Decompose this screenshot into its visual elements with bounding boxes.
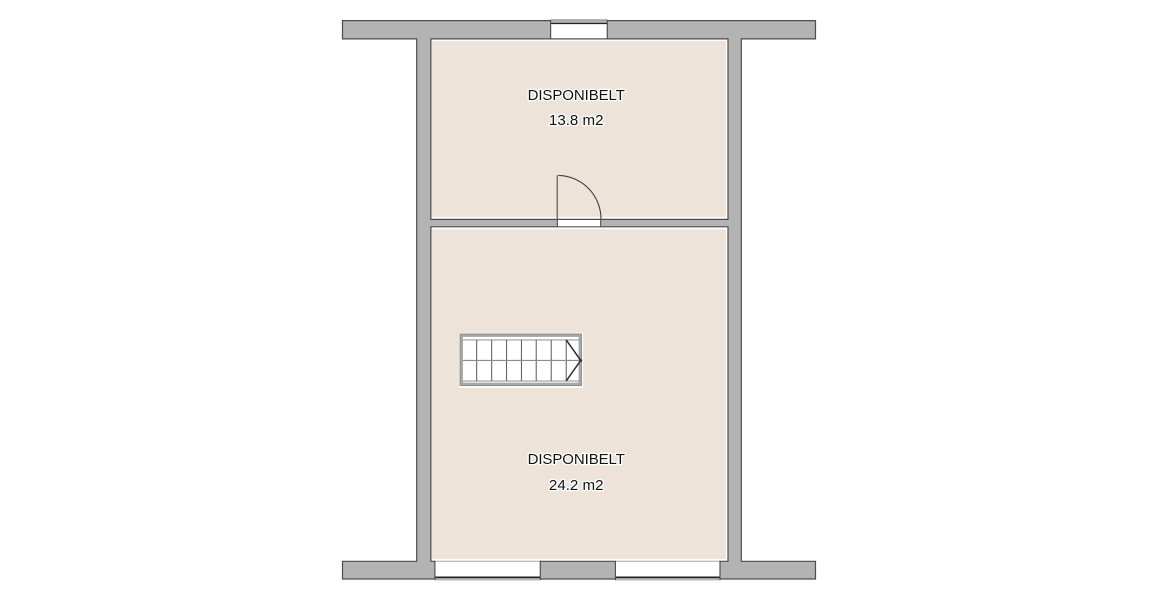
svg-text:DISPONIBELT: DISPONIBELT	[528, 87, 625, 104]
svg-text:13.8 m2: 13.8 m2	[549, 112, 604, 129]
svg-text:DISPONIBELT: DISPONIBELT	[528, 451, 625, 468]
svg-text:24.2 m2: 24.2 m2	[549, 477, 604, 494]
